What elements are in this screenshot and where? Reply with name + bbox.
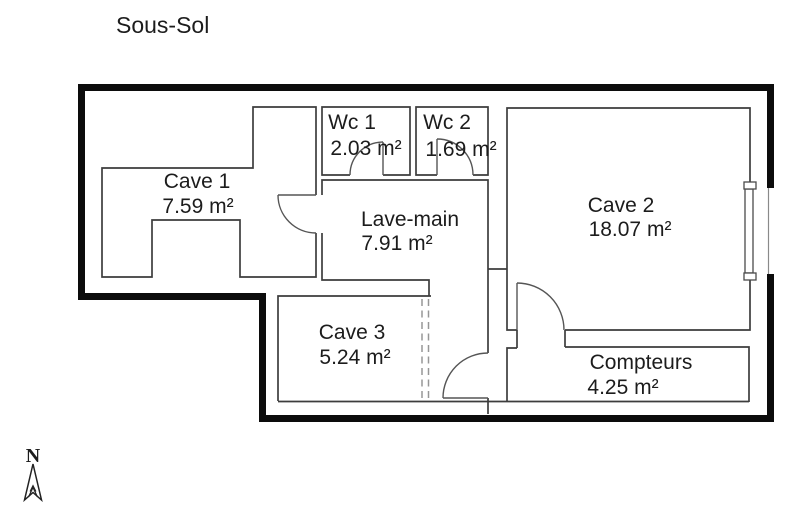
page-title: Sous-Sol (116, 12, 209, 38)
wall-bottom (259, 415, 774, 422)
wc2-name-label: Wc 2 (423, 111, 471, 134)
compteurs-name-label: Compteurs (590, 351, 693, 374)
cave2-area-label: 18.07 m² (589, 218, 672, 241)
wc2-area-label: 1.69 m² (425, 138, 496, 161)
cave2-name-label: Cave 2 (588, 194, 655, 217)
door-compteurs (443, 353, 488, 398)
floor-plan-page: Sous-Sol (0, 0, 800, 508)
wall-top (78, 84, 774, 91)
cave3-area-label: 5.24 m² (319, 346, 390, 369)
window-symbol (744, 182, 769, 280)
north-label: N (26, 445, 41, 467)
lave-main-area-label: 7.91 m² (361, 232, 432, 255)
window-cap-top (744, 182, 756, 189)
door-cave1 (278, 195, 316, 233)
wc1-area-label: 2.03 m² (330, 137, 401, 160)
wall-step (259, 293, 266, 422)
cave3-name-label: Cave 3 (319, 321, 386, 344)
north-arrow (25, 464, 42, 500)
wall-right-upper (767, 84, 774, 188)
wall-left (78, 84, 85, 300)
wall-bottom-left (78, 293, 266, 300)
door-cave2 (517, 283, 564, 330)
cave1-area-label: 7.59 m² (162, 195, 233, 218)
north-compass-icon: N (25, 445, 42, 500)
lave-main-name-label: Lave-main (361, 208, 459, 231)
window-cap-bottom (744, 273, 756, 280)
compteurs-area-label: 4.25 m² (587, 376, 658, 399)
window-frame (745, 189, 753, 273)
floor-plan-drawing: Sous-Sol (0, 0, 800, 508)
cave1-name-label: Cave 1 (164, 170, 231, 193)
wc1-name-label: Wc 1 (328, 111, 376, 134)
room-labels: Cave 1 7.59 m² Wc 1 2.03 m² Wc 2 1.69 m²… (162, 111, 692, 399)
wall-right-lower (767, 274, 774, 422)
